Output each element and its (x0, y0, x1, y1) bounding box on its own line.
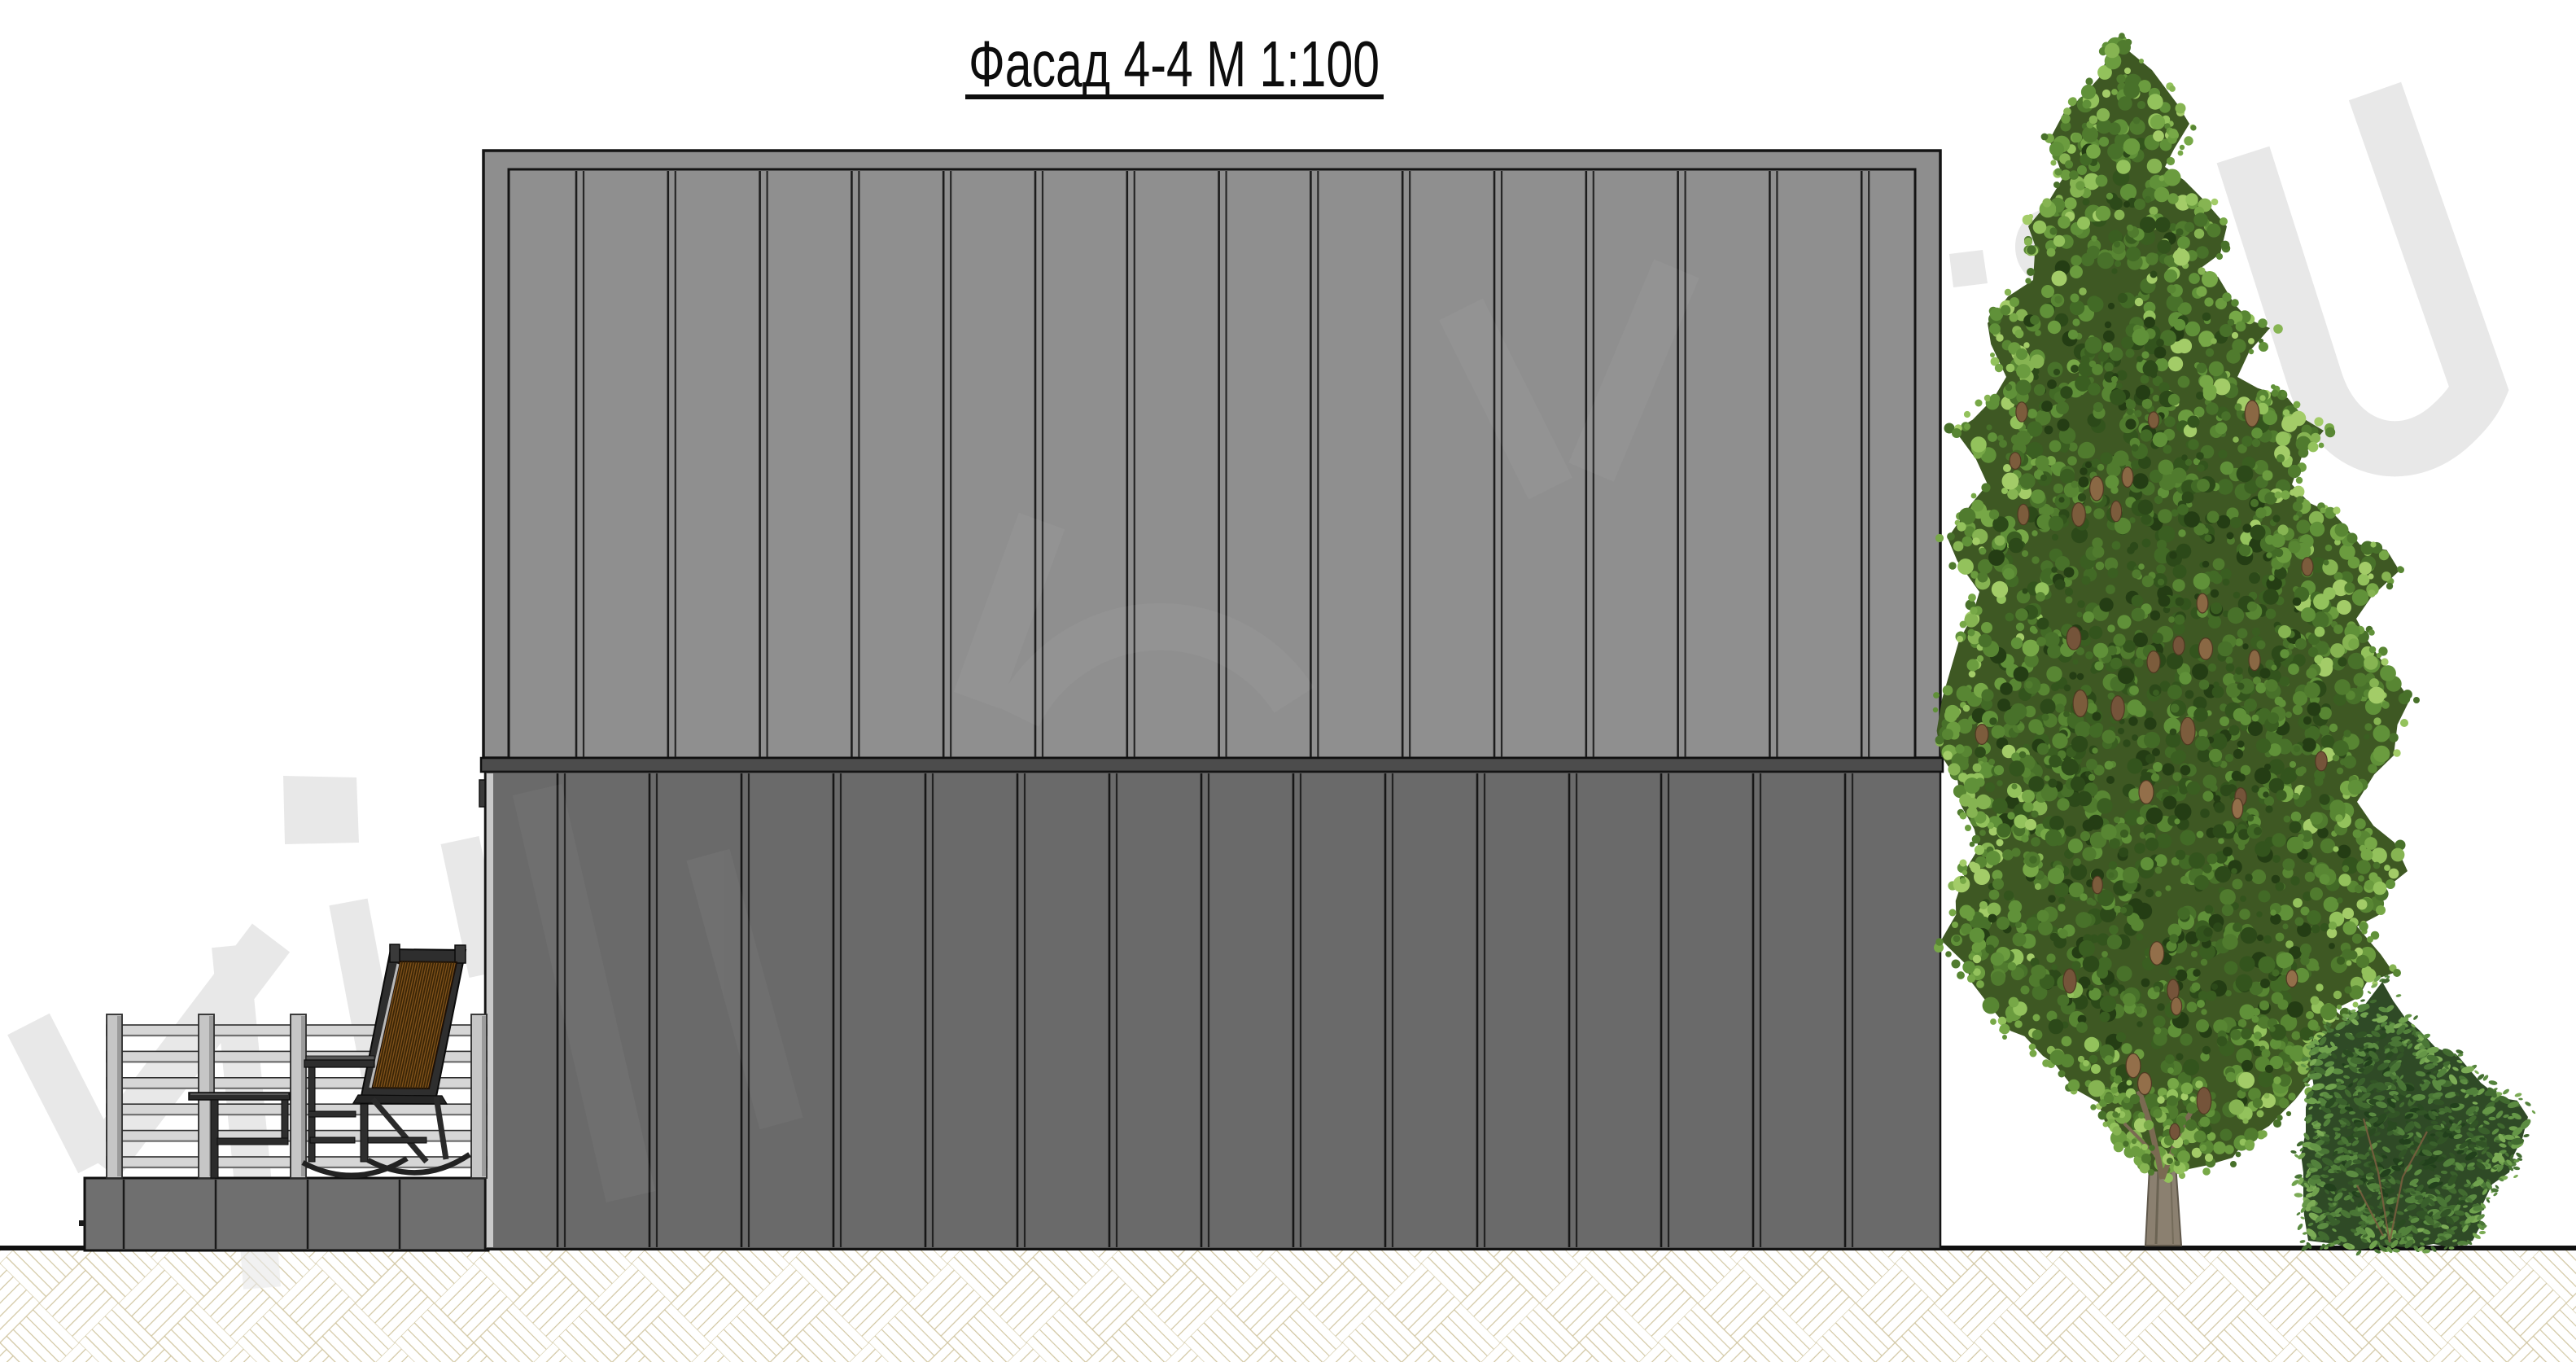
svg-text:Фасад 4-4 М 1:100: Фасад 4-4 М 1:100 (969, 28, 1380, 100)
